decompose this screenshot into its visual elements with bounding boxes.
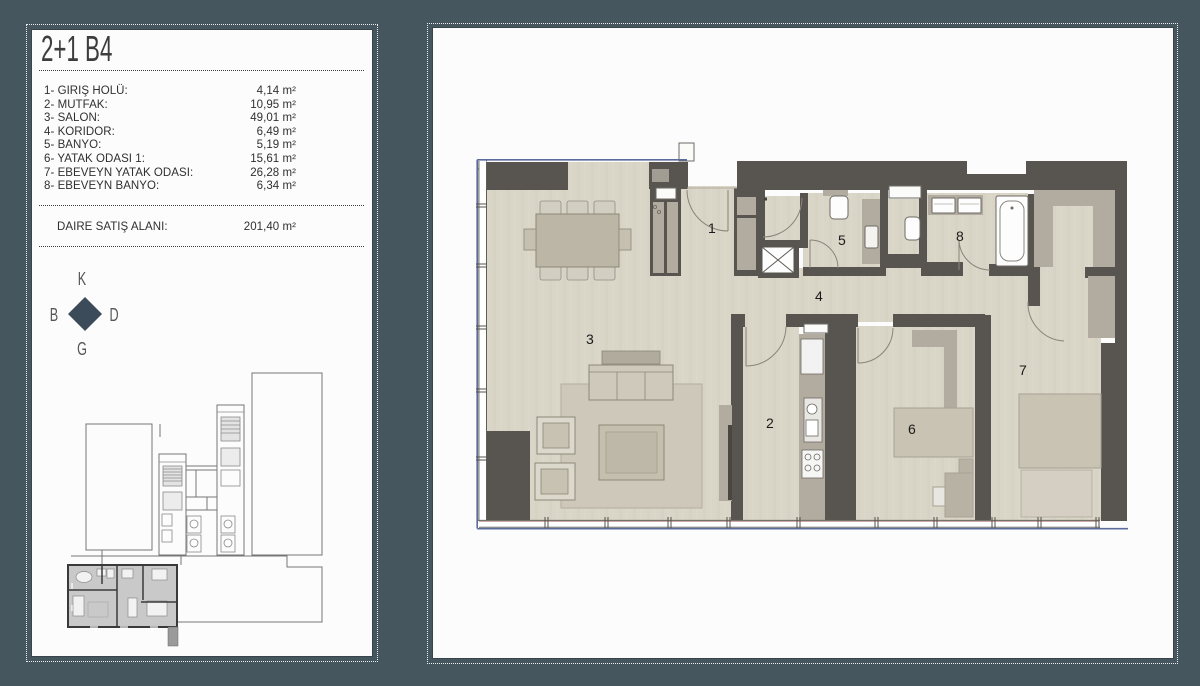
svg-text:2: 2 — [766, 415, 774, 431]
svg-text:5: 5 — [838, 232, 846, 248]
svg-text:4: 4 — [815, 288, 823, 304]
svg-text:1: 1 — [708, 220, 716, 236]
svg-text:8: 8 — [956, 228, 964, 244]
svg-text:7: 7 — [1019, 362, 1027, 378]
svg-text:6: 6 — [908, 421, 916, 437]
svg-text:3: 3 — [586, 331, 594, 347]
